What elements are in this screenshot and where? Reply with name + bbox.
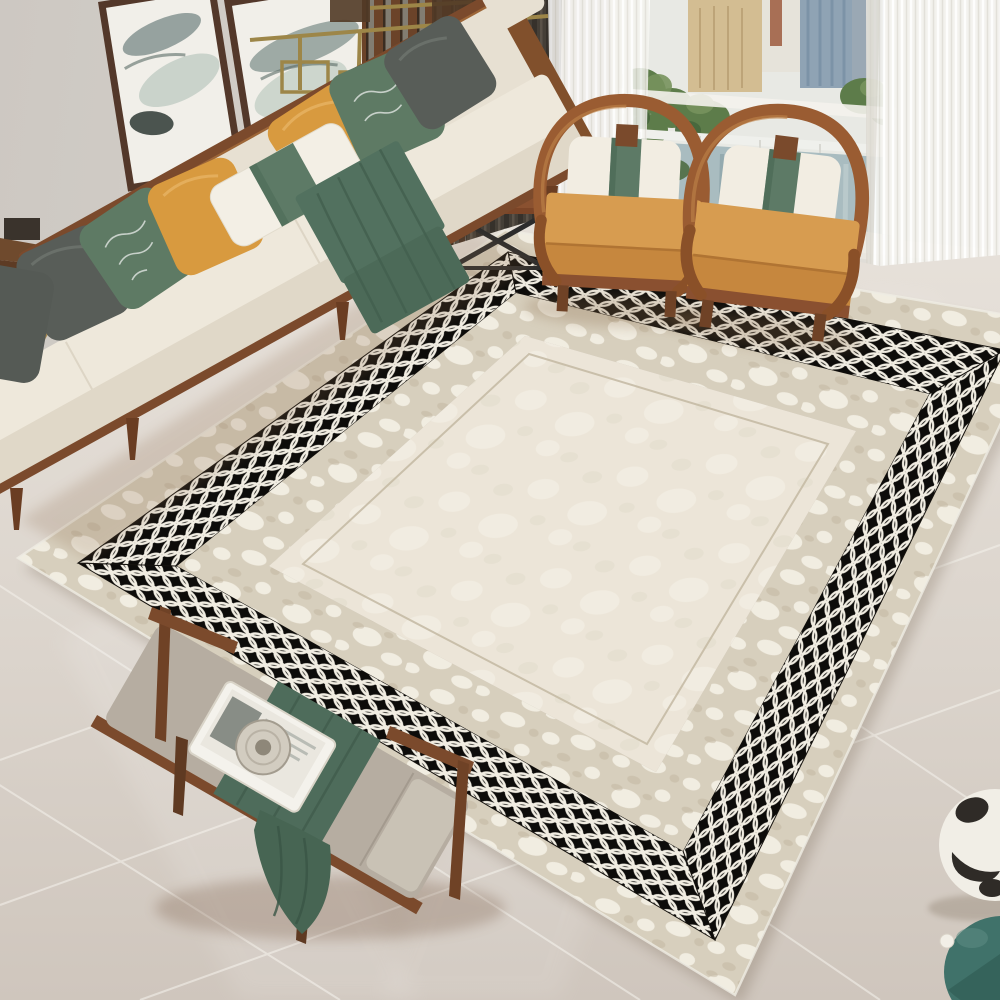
living-room-photo: Modern living room photo: cream area rug… xyxy=(0,0,1000,1000)
floor-pebble xyxy=(940,934,954,948)
scene-canvas: Modern living room photo: cream area rug… xyxy=(0,0,1000,1000)
building-red-tower xyxy=(770,0,782,46)
